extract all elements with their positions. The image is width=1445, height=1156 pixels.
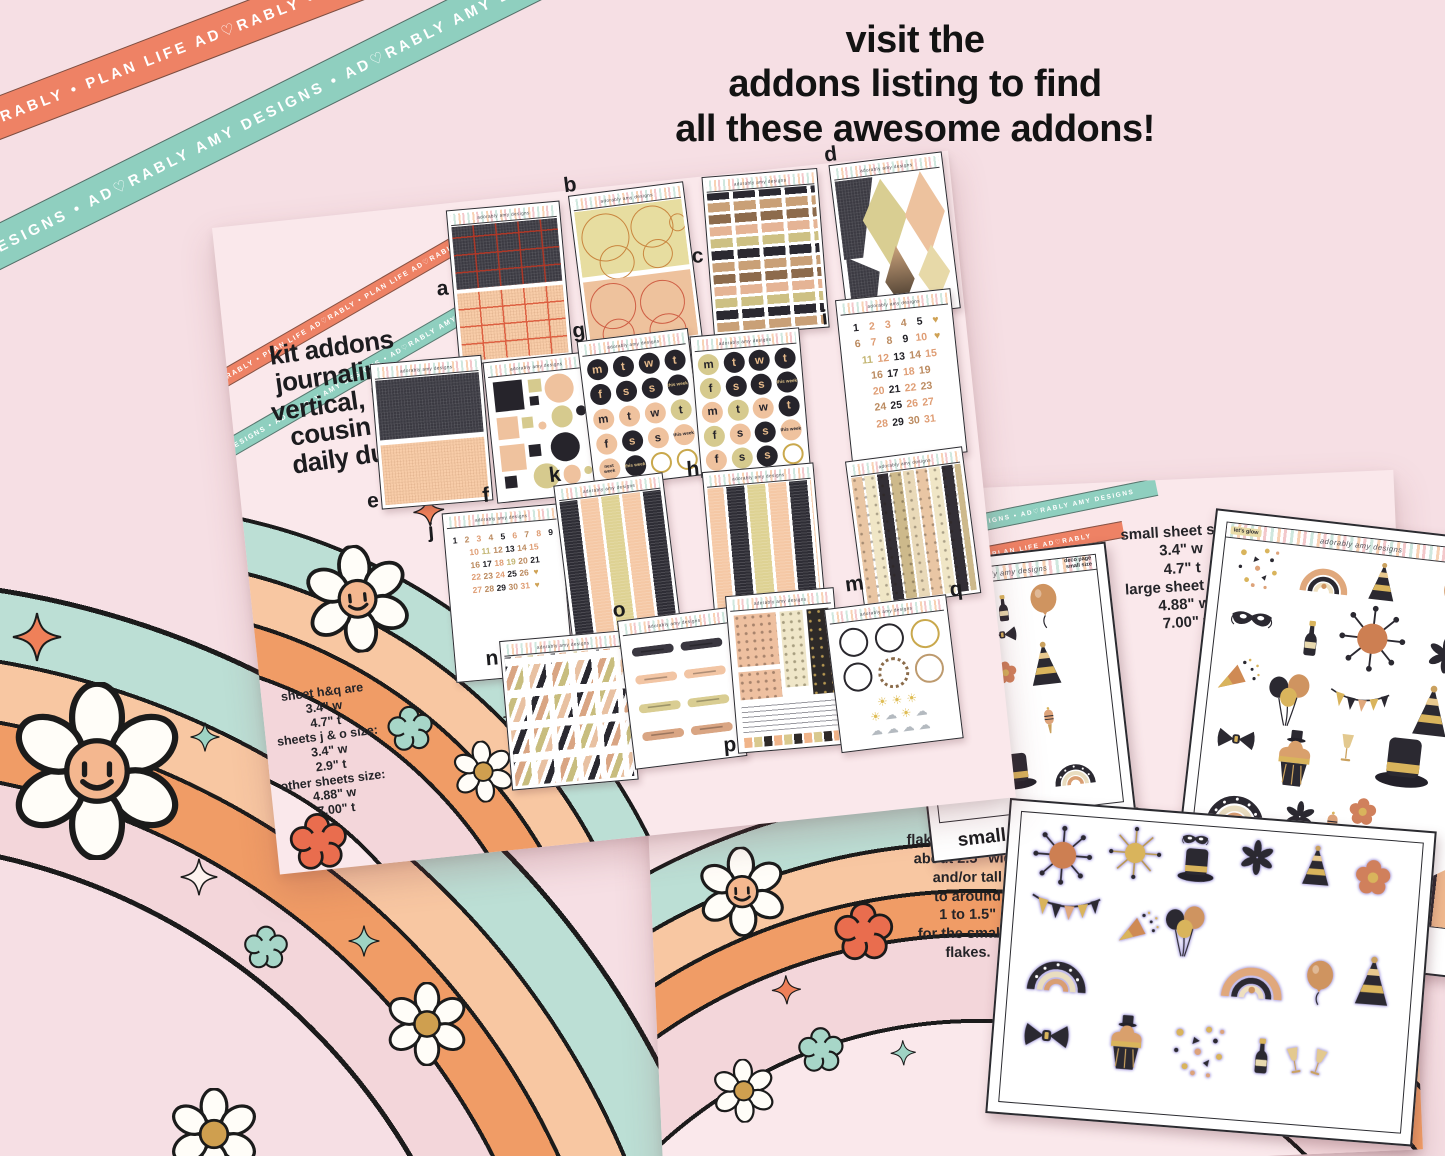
- cloud-icon: ☁: [902, 720, 916, 735]
- day-dot: [782, 442, 805, 465]
- date-number: 9: [898, 331, 914, 349]
- date-number: 3: [473, 532, 484, 546]
- wreath-grid: [830, 612, 953, 700]
- date-number: 11: [860, 351, 876, 369]
- shape: [543, 373, 575, 405]
- day-dot: f: [703, 425, 726, 448]
- day-dot: t: [669, 398, 692, 421]
- shape: [493, 379, 525, 412]
- brand-text: adorably amy designs: [754, 596, 807, 605]
- date-number: 1: [449, 534, 460, 548]
- date-number: 14: [907, 346, 923, 364]
- day-dot: t: [778, 395, 801, 418]
- date-number: 23: [919, 378, 935, 396]
- rainbow-icon: [1209, 939, 1296, 1011]
- day-dot: s: [640, 376, 663, 399]
- sheet-body-day-dots: mtwtfssthis weekmtwtfssthis weeknext wee…: [583, 345, 702, 484]
- sticker-sheet-c: c adorably amy designs: [701, 168, 829, 337]
- day-dot: s: [620, 429, 643, 452]
- shape: [496, 416, 520, 440]
- cloud-icon: ☁: [870, 724, 884, 739]
- day-dot: m: [585, 358, 608, 381]
- sheet-body-strokes: [505, 647, 635, 786]
- date-number: 19: [917, 361, 933, 379]
- date-number: 17: [482, 557, 493, 571]
- date-number: 20: [517, 554, 528, 568]
- shape: [522, 417, 534, 429]
- date-number: 6: [850, 336, 866, 354]
- header-bar: [684, 665, 727, 679]
- date-number: 12: [492, 543, 503, 557]
- firecracker-icon: [1031, 694, 1068, 747]
- day-dot: t: [617, 404, 640, 427]
- header-bar: [638, 699, 681, 713]
- date-number: 30: [508, 580, 519, 594]
- brand-text: adorably amy designs: [607, 338, 660, 349]
- balloon-icon: [1017, 575, 1071, 634]
- date-number: 31: [922, 410, 938, 428]
- daisy-icon: [385, 982, 469, 1066]
- day-dot: t: [774, 347, 797, 370]
- date-number: 16: [470, 558, 481, 572]
- day-dot: f: [589, 383, 612, 406]
- sheet-label: q: [948, 577, 964, 602]
- bow-icon: [1205, 715, 1267, 763]
- date-number: 28: [484, 582, 495, 596]
- date-number: 24: [873, 399, 889, 417]
- day-dot: [649, 451, 672, 474]
- date-number: 13: [891, 348, 907, 366]
- date-number: 14: [516, 541, 527, 555]
- brand-text: adorably amy designs: [734, 177, 787, 186]
- sticker-sheet-b: b adorably amy designs: [568, 181, 703, 352]
- date-number: 2: [864, 318, 880, 336]
- date-number: 27: [472, 583, 483, 597]
- date-number: 27: [920, 394, 936, 412]
- date-number: 16: [869, 366, 885, 384]
- promo-graphic: PLAN LIFE AD♡RABLY • PLAN LIFE AD♡RABLY …: [0, 0, 1445, 1156]
- sheet-label: n: [485, 646, 500, 671]
- kit-name-tag: let's glow: [1230, 526, 1262, 537]
- header-bar: [635, 671, 678, 685]
- firework-burst-icon: [1329, 599, 1415, 679]
- date-number: 10: [914, 329, 930, 347]
- wreath-circle: [873, 622, 905, 654]
- sheet-sizes-note: sheet h&q are 3.4" w 4.7" t sheets j & o…: [262, 678, 397, 824]
- flakes-panel: [985, 798, 1436, 1147]
- brand-text: adorably amy designs: [400, 364, 453, 373]
- firework-burst-icon: [1026, 821, 1099, 890]
- header-bar: [631, 643, 674, 657]
- shape: [505, 476, 518, 489]
- brand-text: adorably amy designs: [600, 192, 653, 204]
- date-number: 23: [483, 570, 494, 584]
- sticker-sheet-a: a adorably amy designs: [446, 201, 573, 366]
- header-bar: [642, 727, 685, 741]
- top-hat-icon: [1166, 842, 1226, 896]
- balloon-icon: [1293, 950, 1346, 1014]
- date-number: 20: [871, 383, 887, 401]
- wreath-circle: [838, 626, 870, 658]
- shape: [900, 169, 950, 258]
- flower-icon: [240, 922, 292, 974]
- sheet-label: b: [562, 173, 578, 198]
- confetti-icon: [1224, 540, 1291, 595]
- page-heading: visit the addons listing to find all the…: [590, 18, 1240, 151]
- brand-text: adorably amy designs: [732, 472, 785, 482]
- date-number: ♥: [531, 565, 542, 579]
- sheet-body-circles: [574, 199, 698, 348]
- party-hat-icon: [1292, 836, 1340, 897]
- sheet-body-day-dots: mtwtfssthis weekmtwtfssthis weekfss: [695, 345, 807, 474]
- day-dot: s: [756, 444, 779, 467]
- brand-text: adorably amy designs: [719, 337, 772, 346]
- date-number: 15: [528, 540, 539, 554]
- star-icon: [348, 925, 380, 957]
- day-dot: f: [595, 432, 618, 455]
- brand-text: adorably amy designs: [860, 605, 913, 616]
- date-number: 8: [533, 527, 544, 541]
- date-number: 22: [903, 379, 919, 397]
- sticker-sheet-n: n adorably amy designs: [499, 630, 639, 790]
- date-number: ♥: [928, 311, 944, 329]
- daisy-icon: [710, 1057, 777, 1124]
- date-number: 22: [471, 571, 482, 585]
- date-number: 21: [529, 553, 540, 567]
- day-dot: m: [592, 408, 615, 431]
- date-number: 4: [896, 315, 912, 333]
- shape: [528, 378, 542, 393]
- party-popper-icon: [1111, 900, 1163, 962]
- date-number: 18: [901, 363, 917, 381]
- date-number: 28: [874, 415, 890, 433]
- date-number: 2: [461, 533, 472, 547]
- shape: [538, 422, 547, 431]
- day-dot: w: [748, 349, 771, 372]
- rainbow-icon: [1045, 745, 1104, 795]
- shape: [741, 698, 838, 733]
- date-number: 11: [480, 544, 491, 558]
- smiley-daisy-icon: [298, 539, 417, 658]
- champagne-glass-icon: [1328, 723, 1365, 774]
- shape: [744, 730, 839, 747]
- date-number: ♥: [532, 578, 543, 592]
- balloons-icon: [1157, 899, 1216, 965]
- champagne-bottle-icon: [1287, 598, 1336, 680]
- shape: [549, 430, 581, 462]
- date-number: 6: [509, 529, 520, 543]
- sheet-label: e: [366, 489, 380, 514]
- pattern: [457, 285, 568, 361]
- sparkle-icon: [180, 858, 218, 896]
- shape: [529, 444, 542, 457]
- day-dot: w: [643, 401, 666, 424]
- shape: [738, 669, 783, 700]
- shape: [550, 404, 574, 428]
- brand-text: adorably amy designs: [537, 640, 590, 650]
- header-bar: [680, 637, 723, 651]
- date-number: 31: [520, 579, 531, 593]
- day-dot: t: [723, 351, 746, 374]
- day-dot: m: [697, 354, 720, 377]
- sheet-body-wreaths-weather: ☀☀☀☀☁☀☁☁☁☁☁: [830, 612, 959, 749]
- sticker-sheet-i: i adorably amy designs 12345♥678910♥1112…: [835, 288, 968, 464]
- sheet-body-date-numbers: 12345♥678910♥111213141516171819202122232…: [841, 305, 963, 460]
- date-number: 5: [497, 530, 508, 544]
- sheet-label: p: [722, 733, 737, 758]
- sparkle-icon: [190, 722, 220, 752]
- mask-icon: [1217, 593, 1288, 644]
- wreath-circle: [909, 617, 941, 649]
- day-dot: f: [705, 448, 728, 471]
- flower-icon: [793, 1022, 849, 1078]
- party-hat-icon: [1018, 634, 1072, 695]
- cloud-icon: ☁: [918, 719, 932, 734]
- date-number: 25: [889, 397, 905, 415]
- day-dot: t: [727, 399, 750, 422]
- brand-text: adorably amy designs: [475, 513, 528, 523]
- date-number: 8: [882, 332, 898, 350]
- pattern: [451, 218, 562, 290]
- shape: [562, 464, 581, 484]
- smiley-daisy-icon: [8, 682, 186, 860]
- day-dot: t: [663, 348, 686, 371]
- shape: [734, 612, 781, 667]
- date-number: 5: [912, 313, 928, 331]
- date-number: 1: [848, 320, 864, 338]
- smiley-daisy-icon: [695, 845, 789, 939]
- bow-icon: [1011, 1008, 1083, 1063]
- shape: [499, 443, 527, 472]
- addons-card-kit: PLAN LIFE AD♡RABLY • PLAN LIFE AD♡RABLY …: [212, 151, 1016, 875]
- cupcake-icon: [1093, 1005, 1158, 1081]
- date-number: 15: [923, 344, 939, 362]
- day-dot: this week: [672, 423, 695, 446]
- date-number: 12: [875, 349, 891, 367]
- sheet-body-scribbles: [707, 185, 826, 332]
- day-dot: w: [752, 397, 775, 420]
- rainbow-icon: [1015, 934, 1100, 1004]
- brand-text: adorably amy designs: [648, 618, 701, 629]
- firework-burst-icon: [1103, 821, 1168, 886]
- brand-text: adorably amy designs: [583, 483, 636, 494]
- date-number: 26: [519, 566, 530, 580]
- sheet-body-halves: [375, 372, 489, 505]
- daisy-icon: [168, 1088, 260, 1156]
- flower-icon: [1234, 837, 1281, 878]
- date-number: 30: [906, 412, 922, 430]
- sheet-label: m: [844, 571, 866, 597]
- date-number: 25: [507, 567, 518, 581]
- flakes-sheet: [998, 811, 1424, 1134]
- sparkle-icon: [771, 974, 802, 1005]
- header-bar: [687, 693, 730, 707]
- day-dot: t: [611, 355, 634, 378]
- rainbow-icon: [1290, 545, 1361, 604]
- date-number: 13: [504, 542, 515, 556]
- shape: [780, 610, 809, 688]
- day-dot: s: [614, 380, 637, 403]
- cloud-icon: ☁: [886, 722, 900, 737]
- sheet-label: a: [436, 276, 450, 301]
- date-number: 7: [521, 528, 532, 542]
- heading-line: all these awesome addons!: [590, 107, 1240, 151]
- day-dot: s: [725, 375, 748, 398]
- date-number: 18: [494, 556, 505, 570]
- date-number: 19: [506, 555, 517, 569]
- sheet-label: g: [571, 318, 587, 343]
- heading-line: addons listing to find: [590, 62, 1240, 106]
- day-dot: s: [729, 423, 752, 446]
- pattern: [375, 372, 484, 440]
- day-dot: s: [754, 420, 777, 443]
- sticker-sheet-h: h adorably amy designs mtwtfssthis weekm…: [689, 327, 810, 478]
- day-dot: s: [731, 446, 754, 469]
- flower-icon: [1346, 854, 1399, 902]
- brand-text: adorably amy designs: [477, 210, 530, 220]
- sheet-label: k: [548, 463, 563, 488]
- sheet-type-tag: deco page small size: [1064, 557, 1092, 572]
- balloon-icon: [1427, 565, 1445, 631]
- pattern: [380, 437, 489, 505]
- party-popper-icon: [1209, 649, 1265, 706]
- sheet-label: h: [686, 457, 701, 482]
- flower-icon: [1422, 633, 1445, 678]
- date-number: 7: [866, 334, 882, 352]
- date-number: 26: [904, 395, 920, 413]
- date-number: 9: [545, 526, 556, 540]
- wreath-circle: [842, 661, 874, 693]
- day-dot: w: [637, 352, 660, 375]
- day-dot: this week: [776, 371, 799, 394]
- day-dot: s: [750, 373, 773, 396]
- pattern: [457, 285, 568, 361]
- date-number: 17: [885, 365, 901, 383]
- heading-line: visit the: [590, 18, 1240, 62]
- date-number: 24: [495, 569, 506, 583]
- daisy-icon: [449, 738, 517, 806]
- day-dot: this week: [666, 373, 689, 396]
- date-number: ♥: [929, 327, 945, 345]
- star-icon: [890, 1039, 917, 1066]
- date-number: 3: [880, 316, 896, 334]
- wreath-circle: [876, 655, 911, 690]
- day-dot: this week: [780, 418, 803, 441]
- sticker-sheet-q: q adorably amy designs ☀☀☀☀☁☀☁☁☁☁☁: [824, 594, 964, 753]
- day-dot: m: [701, 401, 724, 424]
- banner-icon: [1019, 886, 1112, 937]
- day-dot: s: [646, 426, 669, 449]
- sheet-label: c: [691, 245, 705, 270]
- shape: [530, 396, 540, 407]
- banner-icon: [1318, 681, 1400, 728]
- sheet-body-boxes: [451, 218, 568, 362]
- confetti-icon: [1164, 1018, 1233, 1083]
- pattern: [451, 218, 562, 290]
- brand-text: adorably amy designs: [860, 162, 913, 173]
- wreath-circle: [913, 652, 945, 684]
- sparkle-icon: [12, 612, 62, 662]
- brand-text: adorably amy designs: [867, 298, 920, 308]
- day-dot: f: [699, 377, 722, 400]
- date-number: 29: [890, 413, 906, 431]
- date-number: 29: [496, 581, 507, 595]
- date-number: 4: [485, 531, 496, 545]
- date-number: 21: [887, 381, 903, 399]
- date-number: 10: [469, 545, 480, 559]
- sheet-label: o: [611, 598, 627, 623]
- sticker-sheet-e: e adorably amy designs: [370, 355, 494, 510]
- party-hat-icon: [1343, 946, 1402, 1018]
- brand-text: adorably amy designs: [510, 361, 563, 371]
